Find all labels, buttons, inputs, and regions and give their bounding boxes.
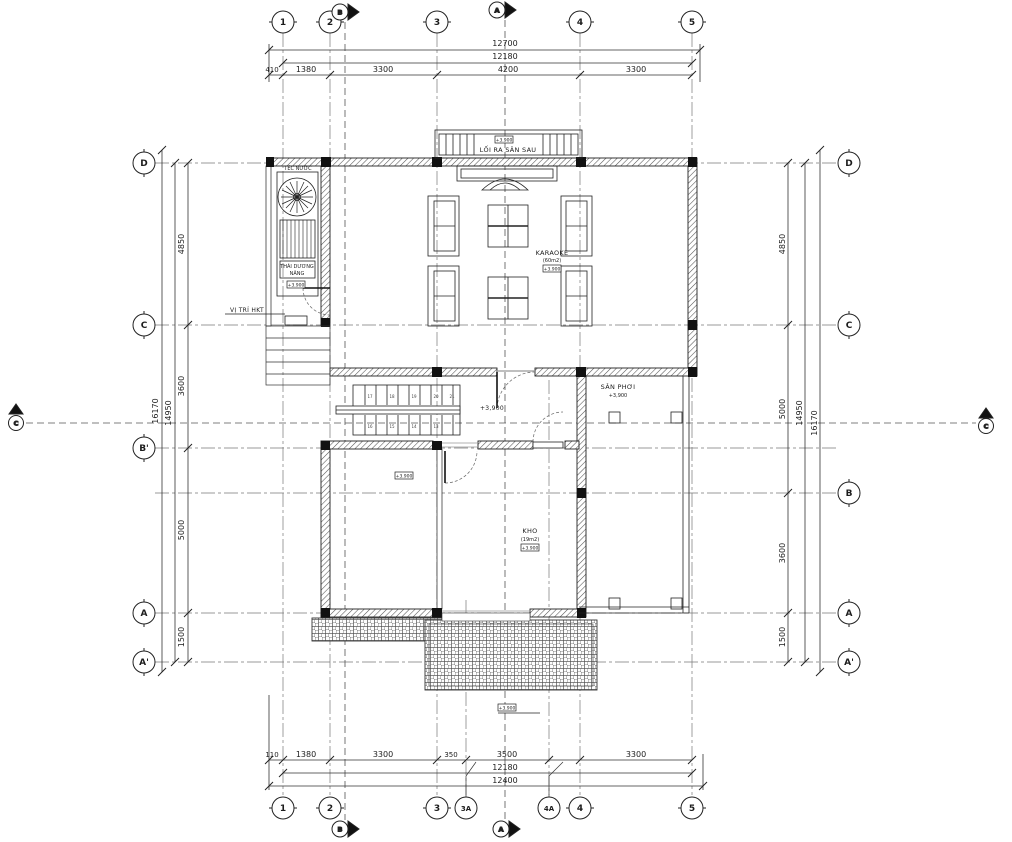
svg-text:18: 18	[389, 394, 395, 399]
dim-seg: 4850	[177, 234, 186, 254]
dim-seg: 3300	[626, 750, 646, 759]
section-marker-icon: C	[9, 404, 24, 431]
dim-seg: 110	[265, 751, 278, 759]
grid-axis-label: A	[846, 609, 853, 619]
dim-seg: 1500	[177, 627, 186, 647]
terrace	[312, 613, 597, 690]
label-stair-level: +3,900	[480, 405, 504, 412]
label-solar-2: NĂNG	[290, 270, 305, 277]
grid-axis-label: 5	[689, 804, 695, 814]
dim-seg: 5000	[778, 399, 787, 419]
room-labels: LỐI RA SÂN SAU TÉC NƯỚC THÁI DƯƠNG NĂNG …	[230, 144, 635, 543]
sofa	[428, 266, 459, 326]
dim-seg: 3300	[373, 65, 393, 74]
svg-text:+3.900: +3.900	[522, 546, 539, 552]
grid-axis-label: 5	[689, 18, 695, 28]
dim-bottom-chain: 12180	[492, 763, 517, 772]
solar-panel-icon	[280, 220, 315, 258]
grid-axis-label: A'	[139, 658, 149, 668]
grid-axis-label: A'	[844, 658, 854, 668]
dim-seg: 1380	[296, 750, 316, 759]
section-marker-icon: B	[332, 821, 359, 837]
dim-seg: 3600	[778, 543, 787, 563]
dim-right-total: 16170	[810, 410, 819, 435]
label-san-phoi: SÂN PHƠI	[601, 382, 636, 391]
dim-seg: 3600	[177, 376, 186, 396]
level-flag: +3.900	[495, 136, 513, 144]
table	[488, 205, 528, 247]
svg-text:C: C	[14, 420, 19, 428]
svg-text:16: 16	[367, 424, 373, 429]
label-water-tank: TÉC NƯỚC	[283, 164, 312, 172]
staircase	[336, 385, 460, 435]
label-san-phoi-level: +3,900	[609, 393, 628, 399]
svg-text:B: B	[338, 826, 343, 834]
dim-seg: 4850	[778, 234, 787, 254]
section-marker-icon: C	[979, 408, 994, 434]
dim-seg: 1500	[778, 627, 787, 647]
level-flag: +3.900	[498, 704, 540, 713]
level-flag: +3.900	[287, 281, 305, 289]
label-karaoke: KARAOKE	[536, 249, 569, 257]
grid-axis-label: 2	[327, 18, 333, 28]
level-flag: +3.900	[543, 265, 561, 273]
svg-text:21: 21	[449, 394, 455, 399]
dim-seg: 3300	[373, 750, 393, 759]
sofa	[561, 196, 592, 256]
grid-axis-label: C	[141, 321, 148, 331]
dim-left-chain: 14950	[164, 400, 173, 425]
dim-seg: 3500	[497, 750, 517, 759]
dim-right-chain: 14950	[795, 400, 804, 425]
section-marker-icon: A	[493, 821, 520, 837]
dim-bottom-total: 12400	[492, 776, 517, 785]
grid-axis-label: A	[141, 609, 148, 619]
svg-text:A: A	[494, 7, 499, 15]
grid-axis-label: 4	[577, 18, 583, 28]
svg-text:19: 19	[411, 394, 417, 399]
grid-axis-label: 2	[327, 804, 333, 814]
grid-axis-label: B'	[139, 444, 149, 454]
sofa	[561, 266, 592, 326]
label-exit-rear: LỐI RA SÂN SAU	[480, 144, 537, 154]
label-kho-area: (19m2)	[521, 537, 539, 543]
grid-axis-label: 3A	[461, 805, 472, 813]
dim-seg: 4200	[498, 65, 518, 74]
svg-text:17: 17	[367, 394, 373, 399]
grid-axis-label: D	[140, 159, 147, 169]
grid-axis-label: C	[846, 321, 853, 331]
grid-axis-label: 3	[434, 804, 440, 814]
level-flag: +3.900	[395, 472, 413, 480]
annex-side-steps	[266, 326, 330, 385]
grid-axis-label: B	[846, 489, 853, 499]
svg-text:+3.900: +3.900	[544, 267, 561, 273]
table	[488, 277, 528, 319]
svg-text:A: A	[498, 826, 503, 834]
label-hkt: VỊ TRÍ HKT	[230, 307, 264, 314]
svg-text:15: 15	[389, 424, 395, 429]
level-flag: +3.900	[521, 544, 539, 552]
svg-text:+3.900: +3.900	[288, 283, 305, 289]
dim-seg: 5000	[177, 520, 186, 540]
dim-top-chain: 12180	[492, 52, 517, 61]
svg-text:20: 20	[433, 394, 439, 399]
svg-text:+3.900: +3.900	[496, 138, 513, 144]
dim-top-total: 12700	[492, 39, 517, 48]
floor-plan-canvas: 12700 12180 410 1380 3300 4200 3300 110 …	[0, 0, 1012, 842]
label-kho: KHO	[522, 527, 537, 535]
dim-seg: 350	[444, 751, 457, 759]
dim-seg: 1380	[296, 65, 316, 74]
svg-text:+3.900: +3.900	[396, 474, 413, 480]
dim-seg: 3300	[626, 65, 646, 74]
doors	[303, 288, 563, 483]
karaoke-furniture	[428, 196, 592, 326]
svg-text:B: B	[338, 9, 343, 17]
grid-bubbles	[133, 11, 860, 819]
section-marker-icon: A	[489, 2, 516, 18]
dim-left-total: 16170	[151, 398, 160, 423]
svg-text:14: 14	[411, 424, 417, 429]
dim-seg: 410	[265, 66, 278, 74]
grid-axis-label: 1	[280, 18, 286, 28]
grid-axis-label: 4	[577, 804, 583, 814]
grid-axis-label: D	[845, 159, 852, 169]
svg-text:C: C	[984, 423, 989, 431]
floor-plan-drawing: 12700 12180 410 1380 3300 4200 3300 110 …	[0, 0, 1012, 842]
grid-axis-label: 1	[280, 804, 286, 814]
grid-axis-label: 4A	[544, 805, 555, 813]
svg-text:13: 13	[433, 424, 439, 429]
tank-room	[277, 172, 318, 296]
san-phoi-deck	[579, 376, 689, 613]
label-karaoke-area: (60m2)	[543, 258, 561, 264]
label-solar-1: THÁI DƯƠNG	[279, 263, 314, 270]
sofa	[428, 196, 459, 256]
svg-text:+3.900: +3.900	[499, 706, 516, 712]
grid-axis-label: 3	[434, 18, 440, 28]
section-marker-icon: B	[332, 4, 359, 20]
